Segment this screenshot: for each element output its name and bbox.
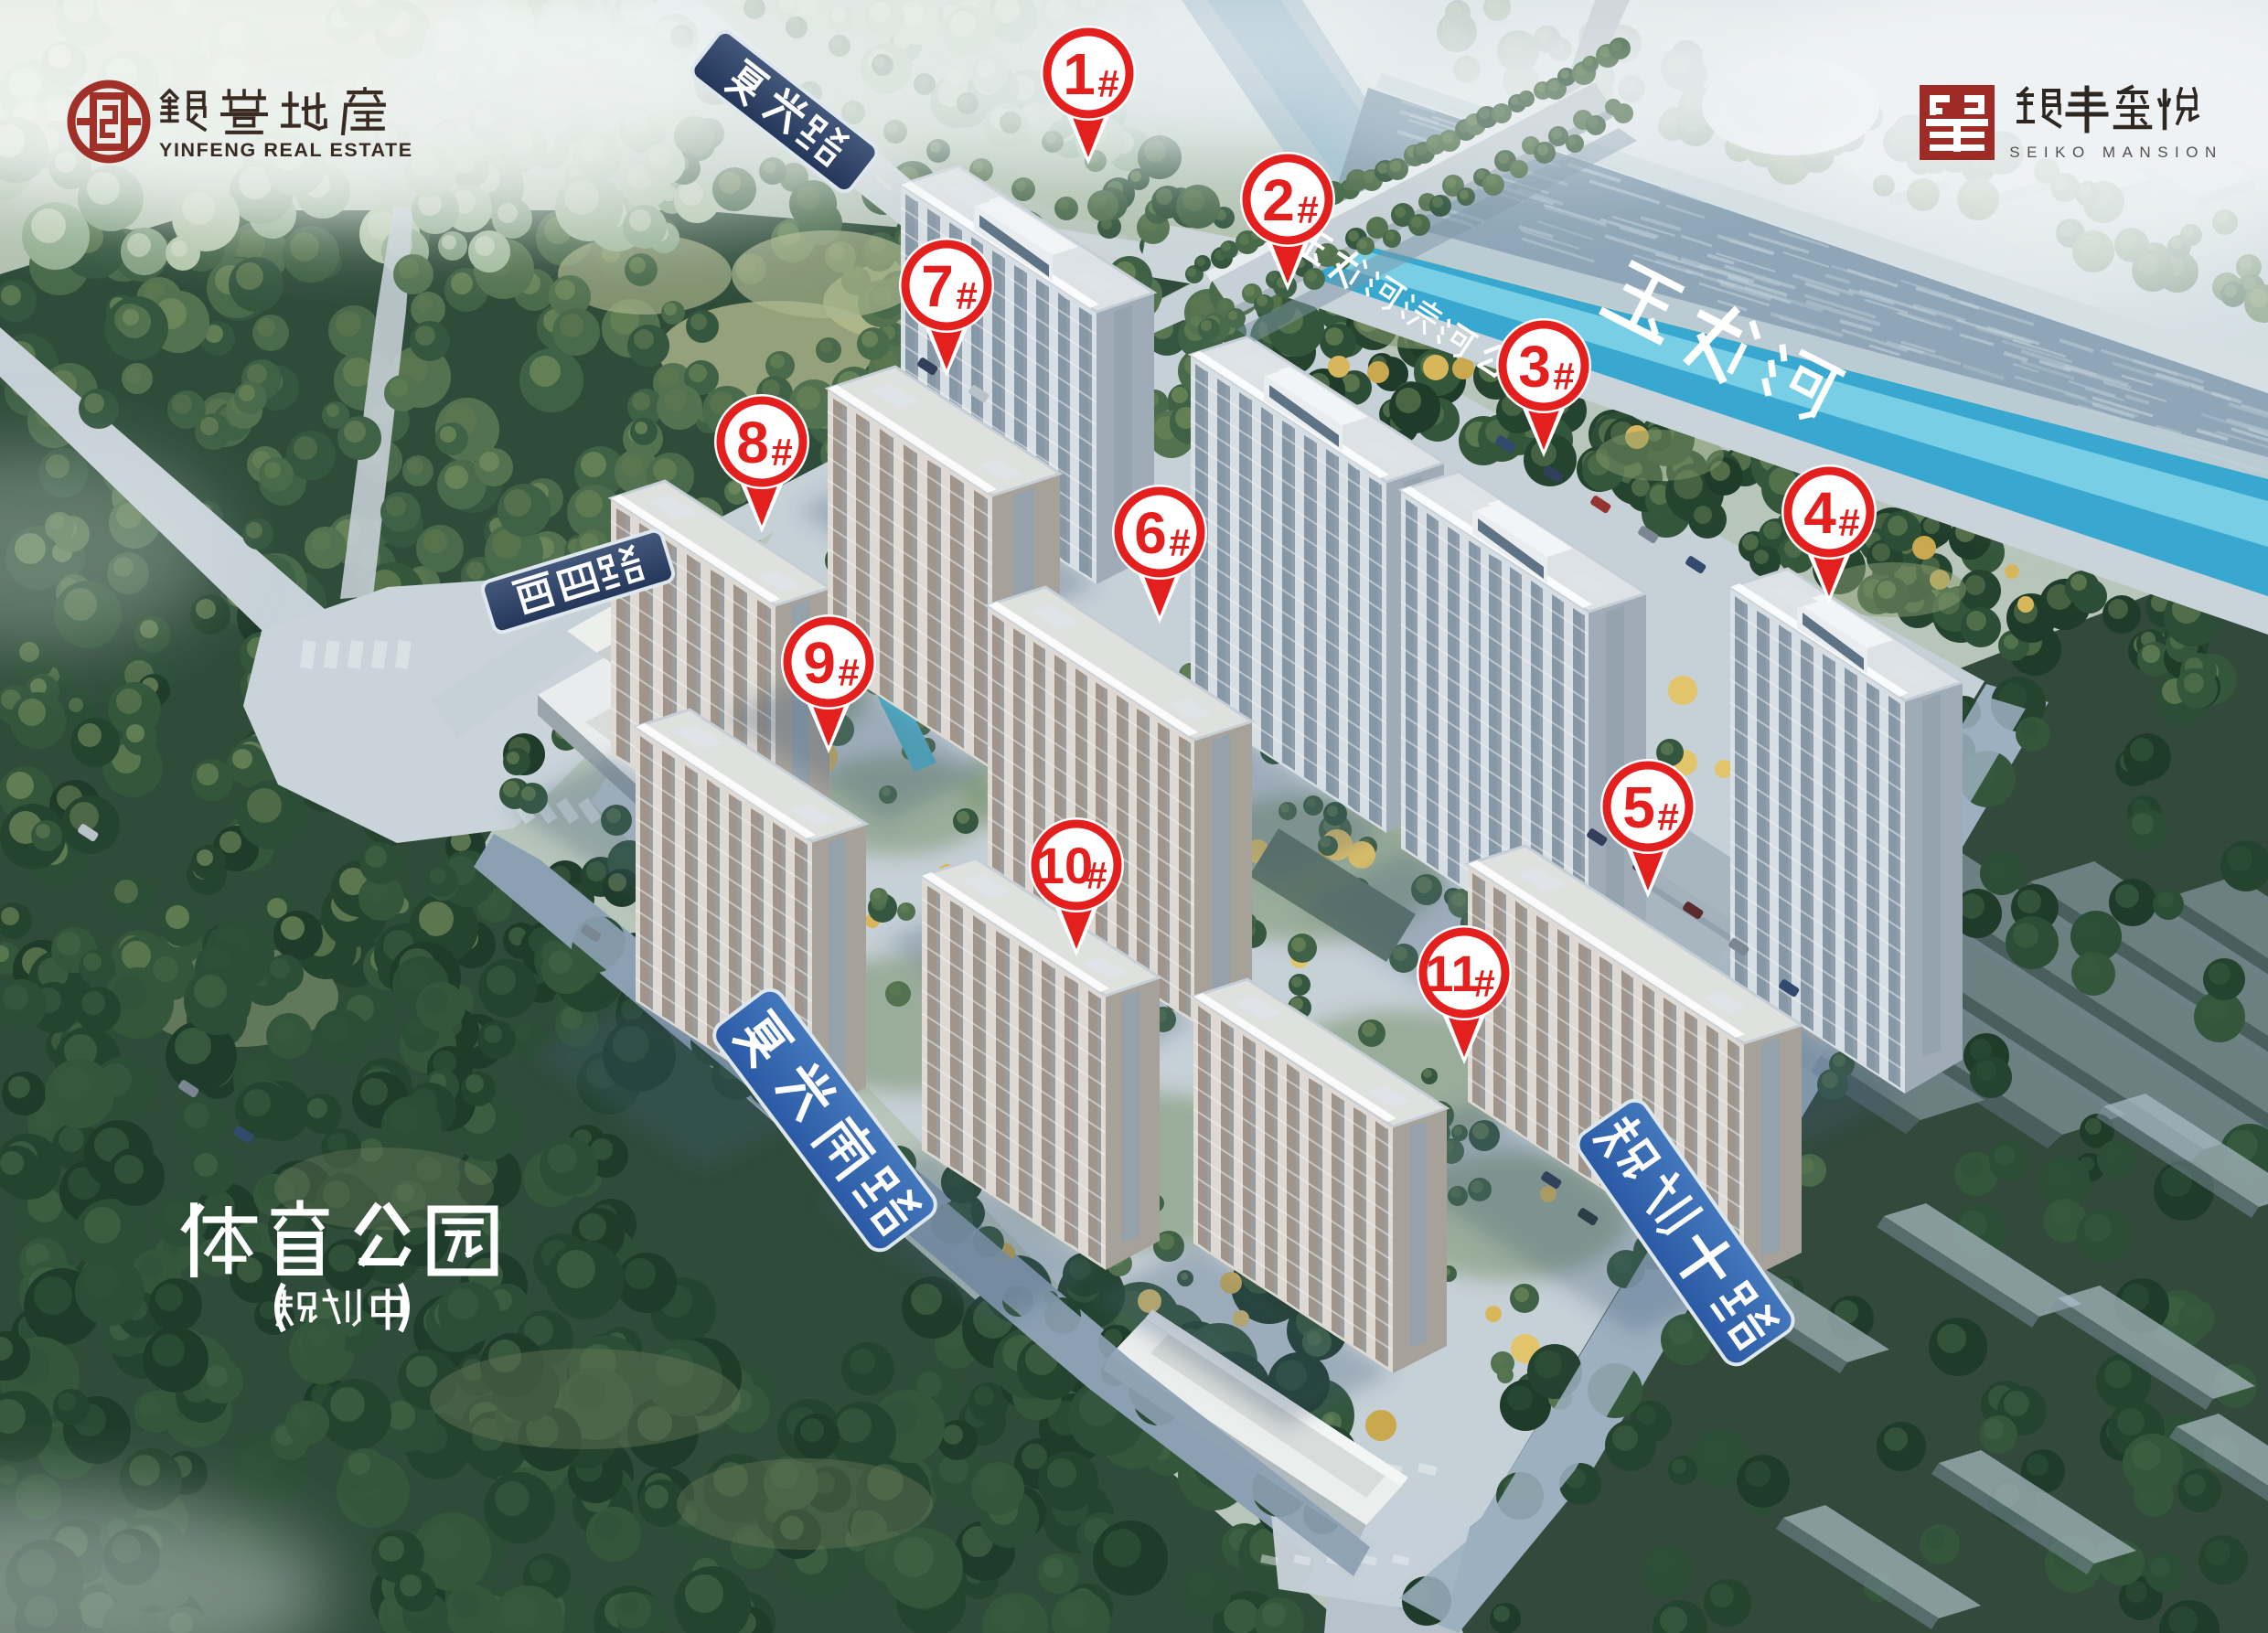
svg-text:#: # xyxy=(838,651,859,694)
svg-text:1: 1 xyxy=(1063,41,1096,107)
svg-text:3: 3 xyxy=(1518,334,1551,400)
svg-text:#: # xyxy=(956,274,977,317)
svg-text:8: 8 xyxy=(736,410,769,475)
svg-text:10: 10 xyxy=(1036,837,1093,894)
svg-text:#: # xyxy=(1553,355,1574,398)
svg-text:#: # xyxy=(1473,962,1494,1005)
svg-text:#: # xyxy=(1169,521,1190,564)
svg-text:4: 4 xyxy=(1803,480,1836,546)
svg-text:SEIKO MANSION: SEIKO MANSION xyxy=(2009,144,2223,161)
svg-text:#: # xyxy=(1097,62,1118,105)
svg-text:6: 6 xyxy=(1134,500,1167,566)
svg-text:11: 11 xyxy=(1425,945,1479,1002)
svg-text:9: 9 xyxy=(803,630,836,696)
svg-text:#: # xyxy=(1838,501,1859,544)
svg-text:7: 7 xyxy=(921,253,954,319)
svg-text:5: 5 xyxy=(1622,774,1655,840)
svg-text:#: # xyxy=(1086,854,1107,897)
svg-text:2: 2 xyxy=(1262,167,1295,233)
svg-text:#: # xyxy=(1297,188,1318,231)
svg-text:#: # xyxy=(771,431,792,474)
svg-text:#: # xyxy=(1657,795,1678,838)
svg-text:YINFENG REAL ESTATE: YINFENG REAL ESTATE xyxy=(159,139,413,161)
